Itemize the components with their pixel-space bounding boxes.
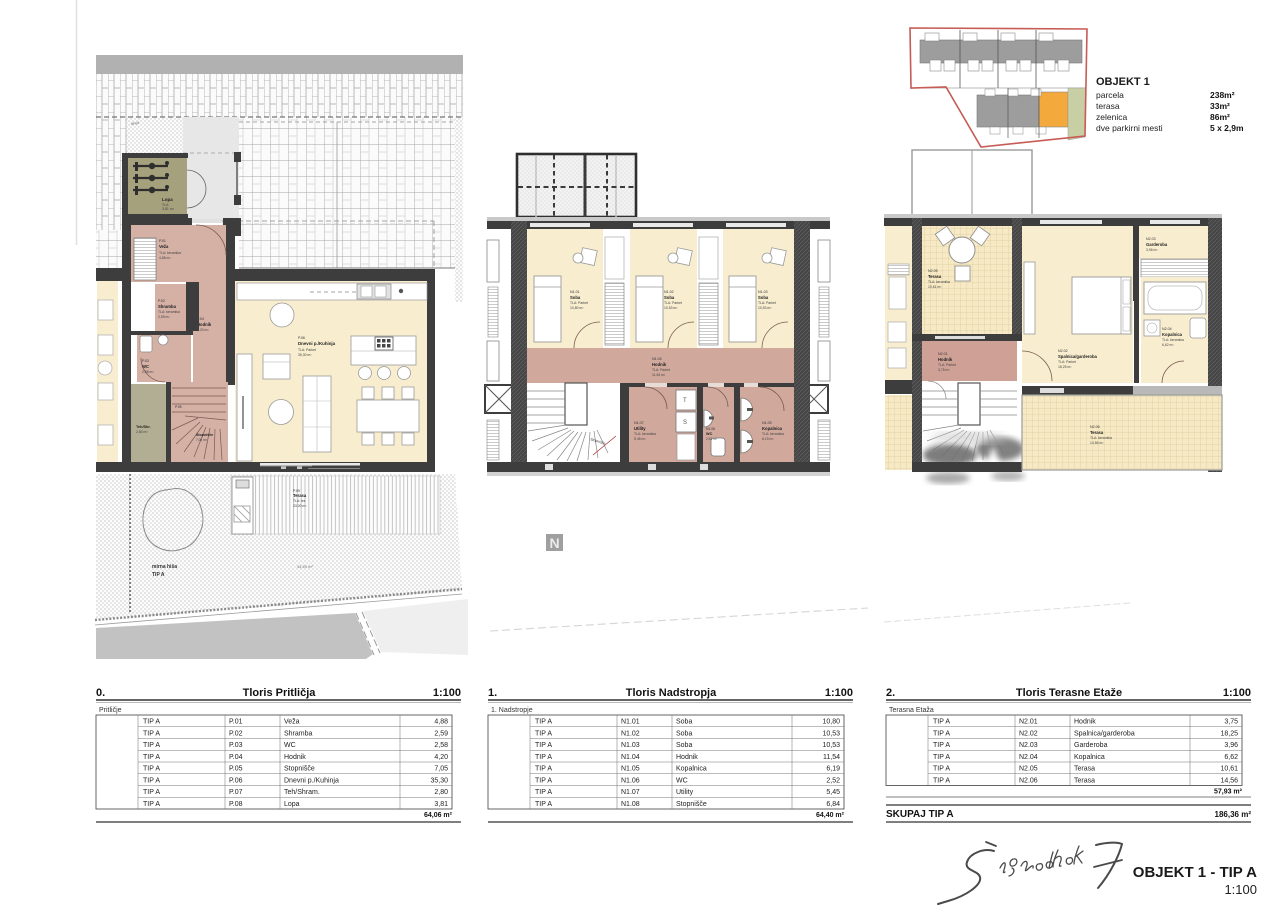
svg-text:0.: 0. xyxy=(96,687,105,699)
svg-text:N1.03: N1.03 xyxy=(758,290,768,294)
svg-text:2,80 m²: 2,80 m² xyxy=(136,430,148,434)
svg-text:57,93 m²: 57,93 m² xyxy=(1214,789,1243,796)
svg-text:TLA: les: TLA: les xyxy=(293,499,306,503)
svg-text:TLA: keramika: TLA: keramika xyxy=(158,310,180,314)
svg-text:TLA: Parket: TLA: Parket xyxy=(1058,360,1076,364)
svg-text:P.05: P.05 xyxy=(175,405,182,409)
svg-text:Tloris Pritličja: Tloris Pritličja xyxy=(243,687,317,699)
svg-text:Terasa: Terasa xyxy=(928,274,942,279)
svg-text:Tloris Terasne Etaže: Tloris Terasne Etaže xyxy=(1016,687,1122,699)
svg-text:2.: 2. xyxy=(886,687,895,699)
svg-text:TLA: keramika: TLA: keramika xyxy=(634,432,656,436)
svg-text:3,75: 3,75 xyxy=(1224,719,1238,726)
svg-text:3,96: 3,96 xyxy=(1224,742,1238,749)
svg-text:1:100: 1:100 xyxy=(1224,882,1257,897)
svg-text:Kopalnica: Kopalnica xyxy=(762,426,783,431)
svg-text:TLA: Parket: TLA: Parket xyxy=(664,301,682,305)
svg-text:N1.07: N1.07 xyxy=(621,789,640,796)
svg-text:N2.01: N2.01 xyxy=(938,352,948,356)
svg-text:3,81 m²: 3,81 m² xyxy=(162,207,175,211)
svg-text:P.02: P.02 xyxy=(158,299,165,303)
svg-text:10,61 m²: 10,61 m² xyxy=(928,285,942,289)
svg-text:Garderoba: Garderoba xyxy=(1074,742,1108,749)
svg-text:Terasna Etaža: Terasna Etaža xyxy=(889,707,934,714)
svg-text:N1.05: N1.05 xyxy=(762,421,772,425)
svg-text:4,88: 4,88 xyxy=(434,719,448,726)
svg-text:N1.08: N1.08 xyxy=(621,801,640,808)
svg-text:10,53: 10,53 xyxy=(822,730,840,737)
svg-text:N2.05: N2.05 xyxy=(928,269,938,273)
svg-text:Terasa: Terasa xyxy=(1074,766,1095,773)
svg-text:Shramba: Shramba xyxy=(284,730,313,737)
svg-text:TLA: keramika: TLA: keramika xyxy=(1162,338,1184,342)
svg-text:Pritličje: Pritličje xyxy=(99,707,122,714)
svg-text:Kopalnica: Kopalnica xyxy=(1074,754,1105,761)
svg-text:zelenica: zelenica xyxy=(1096,112,1127,122)
svg-text:TIP A: TIP A xyxy=(933,742,950,749)
svg-text:N2.02: N2.02 xyxy=(1019,730,1038,737)
svg-text:Stopnišče: Stopnišče xyxy=(284,766,315,773)
svg-text:Dnevni p./Kuhinja: Dnevni p./Kuhinja xyxy=(298,341,336,346)
svg-text:2,59 m²: 2,59 m² xyxy=(158,315,170,319)
svg-text:Terasa: Terasa xyxy=(1074,777,1095,784)
svg-text:P.02: P.02 xyxy=(229,730,243,737)
svg-text:N2.04: N2.04 xyxy=(1019,754,1038,761)
svg-text:Soba: Soba xyxy=(676,730,692,737)
svg-text:Kopalnica: Kopalnica xyxy=(676,766,707,773)
svg-text:S: S xyxy=(683,420,687,426)
svg-text:11,54: 11,54 xyxy=(823,754,840,761)
svg-text:14,56 m²: 14,56 m² xyxy=(1090,441,1104,445)
svg-text:TIP A: TIP A xyxy=(933,730,950,737)
svg-text:1:100: 1:100 xyxy=(1223,687,1251,699)
svg-text:N: N xyxy=(549,535,559,551)
svg-text:P.03: P.03 xyxy=(142,359,149,363)
svg-text:TLA: Parket: TLA: Parket xyxy=(938,363,956,367)
svg-text:Utility: Utility xyxy=(676,789,694,796)
svg-text:3,96 m²: 3,96 m² xyxy=(1146,248,1158,252)
svg-text:TLA: keramika: TLA: keramika xyxy=(928,280,950,284)
svg-text:TIP A: TIP A xyxy=(143,801,160,808)
svg-text:1:100: 1:100 xyxy=(433,687,461,699)
svg-text:6,84: 6,84 xyxy=(826,801,840,808)
svg-text:N2.04: N2.04 xyxy=(1162,327,1172,331)
svg-text:64,40 m²: 64,40 m² xyxy=(816,812,845,819)
svg-text:33,00 m²: 33,00 m² xyxy=(293,504,307,508)
svg-text:3,81: 3,81 xyxy=(434,801,448,808)
svg-text:10,61: 10,61 xyxy=(1220,766,1238,773)
svg-text:Soba: Soba xyxy=(676,742,692,749)
svg-text:P.05: P.05 xyxy=(229,766,243,773)
svg-text:TIP A: TIP A xyxy=(535,801,552,808)
svg-text:TIP A: TIP A xyxy=(143,730,160,737)
svg-text:TIP A: TIP A xyxy=(535,789,552,796)
svg-text:WC: WC xyxy=(676,777,688,784)
svg-text:4,88 m²: 4,88 m² xyxy=(159,256,171,260)
svg-text:7,05 m²: 7,05 m² xyxy=(196,438,207,442)
svg-text:N1.05: N1.05 xyxy=(621,766,640,773)
svg-text:N1.07: N1.07 xyxy=(634,421,644,425)
svg-text:2,52: 2,52 xyxy=(826,777,840,784)
svg-text:TIP A: TIP A xyxy=(143,754,160,761)
svg-text:Stopnišče: Stopnišče xyxy=(676,801,707,808)
svg-text:64,06 m²: 64,06 m² xyxy=(424,812,453,819)
svg-text:1. Nadstropje: 1. Nadstropje xyxy=(491,707,533,714)
svg-text:Hodnik: Hodnik xyxy=(1074,719,1096,726)
svg-text:TIP A: TIP A xyxy=(143,742,160,749)
svg-text:N2.05: N2.05 xyxy=(1019,766,1038,773)
svg-text:N2.03: N2.03 xyxy=(1146,237,1156,241)
svg-text:2,59: 2,59 xyxy=(434,730,448,737)
svg-text:SKUPAJ TIP A: SKUPAJ TIP A xyxy=(886,809,954,820)
svg-text:5,45 m²: 5,45 m² xyxy=(634,437,646,441)
svg-text:4,20: 4,20 xyxy=(434,754,448,761)
svg-text:TIP A: TIP A xyxy=(933,777,950,784)
svg-text:P.01: P.01 xyxy=(159,239,166,243)
svg-text:N1.04: N1.04 xyxy=(621,754,640,761)
svg-text:86m²: 86m² xyxy=(1210,112,1230,122)
svg-text:7,05: 7,05 xyxy=(434,766,448,773)
svg-text:6,19 m²: 6,19 m² xyxy=(762,437,774,441)
svg-text:Terasa: Terasa xyxy=(1090,430,1104,435)
svg-text:TIP A: TIP A xyxy=(535,730,552,737)
svg-text:TIP A: TIP A xyxy=(143,719,160,726)
svg-text:Kopalnica: Kopalnica xyxy=(1162,332,1183,337)
svg-text:WC: WC xyxy=(142,364,149,369)
svg-text:P.03: P.03 xyxy=(229,742,243,749)
svg-text:10,80: 10,80 xyxy=(822,719,840,726)
svg-text:T: T xyxy=(683,398,687,404)
svg-text:Hodnik: Hodnik xyxy=(938,357,953,362)
svg-text:5,45: 5,45 xyxy=(826,789,840,796)
svg-text:WC: WC xyxy=(284,742,296,749)
svg-text:TLA: Parket: TLA: Parket xyxy=(298,348,316,352)
svg-text:2,58: 2,58 xyxy=(434,742,448,749)
svg-text:Spalnica/garderoba: Spalnica/garderoba xyxy=(1058,354,1098,359)
svg-text:Lopa: Lopa xyxy=(284,801,300,808)
svg-text:N1.02: N1.02 xyxy=(621,730,640,737)
svg-text:P.07: P.07 xyxy=(229,789,243,796)
svg-text:TIP A: TIP A xyxy=(143,777,160,784)
svg-text:TIP A: TIP A xyxy=(535,742,552,749)
svg-text:TLA: keramika: TLA: keramika xyxy=(762,432,784,436)
svg-text:TLA: Parket: TLA: Parket xyxy=(652,368,670,372)
svg-text:18,25: 18,25 xyxy=(1220,730,1238,737)
svg-text:186,36 m²: 186,36 m² xyxy=(1215,810,1252,819)
svg-text:Hodnik: Hodnik xyxy=(197,322,212,327)
svg-text:Spalnica/garderoba: Spalnica/garderoba xyxy=(1074,730,1135,737)
svg-text:P.06: P.06 xyxy=(298,336,305,340)
svg-text:Utility: Utility xyxy=(634,426,646,431)
svg-text:Hodnik: Hodnik xyxy=(284,754,306,761)
svg-text:14,56: 14,56 xyxy=(1220,777,1238,784)
svg-text:10,53 m²: 10,53 m² xyxy=(664,306,678,310)
svg-text:TIP A: TIP A xyxy=(933,766,950,773)
svg-text:6,62: 6,62 xyxy=(1224,754,1238,761)
svg-text:TIP A: TIP A xyxy=(535,777,552,784)
svg-text:parcela: parcela xyxy=(1096,90,1124,100)
svg-text:5 x 2,9m: 5 x 2,9m xyxy=(1210,123,1244,133)
svg-text:P.08: P.08 xyxy=(229,801,243,808)
svg-text:TIP A: TIP A xyxy=(535,719,552,726)
svg-text:N1.06: N1.06 xyxy=(621,777,640,784)
svg-text:2,80: 2,80 xyxy=(434,789,448,796)
svg-text:Lopa: Lopa xyxy=(162,197,173,202)
svg-text:N2.06: N2.06 xyxy=(1019,777,1038,784)
svg-text:terasa: terasa xyxy=(1096,101,1120,111)
svg-text:Hodnik: Hodnik xyxy=(676,754,698,761)
svg-text:OBJEKT 1 - TIP A: OBJEKT 1 - TIP A xyxy=(1133,864,1257,881)
svg-text:mirna hiša: mirna hiša xyxy=(152,564,177,570)
svg-text:Soba: Soba xyxy=(676,719,692,726)
svg-text:18,25 m²: 18,25 m² xyxy=(1058,365,1072,369)
svg-text:10,80 m²: 10,80 m² xyxy=(570,306,584,310)
svg-text:Veža: Veža xyxy=(159,244,169,249)
svg-text:TIP A: TIP A xyxy=(933,754,950,761)
svg-text:44,59 m²: 44,59 m² xyxy=(297,564,313,569)
svg-text:Teh/Shram.: Teh/Shram. xyxy=(284,789,320,796)
svg-text:Stopnišče: Stopnišče xyxy=(196,433,213,437)
svg-text:TIP A: TIP A xyxy=(535,754,552,761)
svg-text:238m²: 238m² xyxy=(1210,90,1235,100)
svg-text:Dnevni p./Kuhinja: Dnevni p./Kuhinja xyxy=(284,777,339,784)
svg-text:3,75 m²: 3,75 m² xyxy=(938,368,950,372)
svg-text:dve parkirni mesti: dve parkirni mesti xyxy=(1096,123,1163,133)
svg-text:Veža: Veža xyxy=(284,719,300,726)
svg-text:33m²: 33m² xyxy=(1210,101,1230,111)
svg-text:N1.02: N1.02 xyxy=(664,290,674,294)
svg-text:N1.04: N1.04 xyxy=(652,357,662,361)
svg-text:Teh/Shr.: Teh/Shr. xyxy=(136,425,151,429)
svg-text:35,30: 35,30 xyxy=(430,777,448,784)
svg-text:P.01: P.01 xyxy=(229,719,243,726)
svg-text:OBJEKT 1: OBJEKT 1 xyxy=(1096,76,1150,88)
svg-text:Shramba: Shramba xyxy=(158,304,177,309)
svg-text:35,30 m²: 35,30 m² xyxy=(298,353,312,357)
svg-text:TIP A: TIP A xyxy=(143,789,160,796)
svg-text:TLA: Parket: TLA: Parket xyxy=(758,301,776,305)
svg-text:P.04: P.04 xyxy=(229,754,243,761)
svg-text:N1.06: N1.06 xyxy=(706,427,715,431)
svg-text:1:100: 1:100 xyxy=(825,687,853,699)
svg-text:Soba: Soba xyxy=(664,295,675,300)
svg-text:Terasa: Terasa xyxy=(293,493,307,498)
svg-text:N2.06: N2.06 xyxy=(1090,425,1100,429)
svg-text:WC: WC xyxy=(706,432,713,436)
svg-text:2,52 m²: 2,52 m² xyxy=(706,437,717,441)
svg-text:TLA: keramika: TLA: keramika xyxy=(159,251,181,255)
svg-text:Hodnik: Hodnik xyxy=(652,362,667,367)
svg-text:11,54 m²: 11,54 m² xyxy=(652,373,666,377)
svg-text:Soba: Soba xyxy=(570,295,581,300)
svg-text:TLA: keramika: TLA: keramika xyxy=(1090,436,1112,440)
svg-text:N2.03: N2.03 xyxy=(1019,742,1038,749)
svg-text:N2.02: N2.02 xyxy=(1058,349,1068,353)
svg-text:Tloris Nadstropja: Tloris Nadstropja xyxy=(626,687,717,699)
svg-text:6,62 m²: 6,62 m² xyxy=(1162,343,1174,347)
svg-text:10,53 m²: 10,53 m² xyxy=(758,306,772,310)
svg-text:P.06: P.06 xyxy=(229,777,243,784)
svg-text:TIP A: TIP A xyxy=(152,572,165,578)
svg-text:N1.01: N1.01 xyxy=(621,719,640,726)
svg-text:TLA: Parket: TLA: Parket xyxy=(570,301,588,305)
svg-text:N2.01: N2.01 xyxy=(1019,719,1038,726)
svg-text:N1.03: N1.03 xyxy=(621,742,640,749)
svg-text:Soba: Soba xyxy=(758,295,769,300)
svg-text:TIP A: TIP A xyxy=(143,766,160,773)
svg-text:6,19: 6,19 xyxy=(826,766,840,773)
svg-text:10,53: 10,53 xyxy=(822,742,840,749)
svg-text:TIP A: TIP A xyxy=(933,719,950,726)
svg-text:N1.01: N1.01 xyxy=(570,290,580,294)
svg-text:Garderoba: Garderoba xyxy=(1146,242,1168,247)
svg-text:1.: 1. xyxy=(488,687,497,699)
svg-text:2,58 m²: 2,58 m² xyxy=(142,370,154,374)
svg-text:TIP A: TIP A xyxy=(535,766,552,773)
